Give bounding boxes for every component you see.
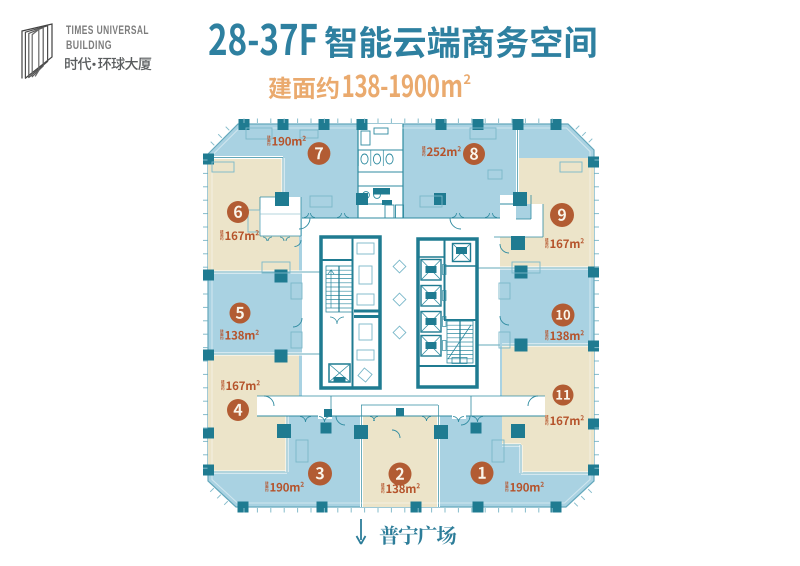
svg-text:TIMES UNIVERSAL: TIMES UNIVERSAL	[66, 25, 149, 37]
svg-text:BUILDING: BUILDING	[66, 40, 112, 52]
